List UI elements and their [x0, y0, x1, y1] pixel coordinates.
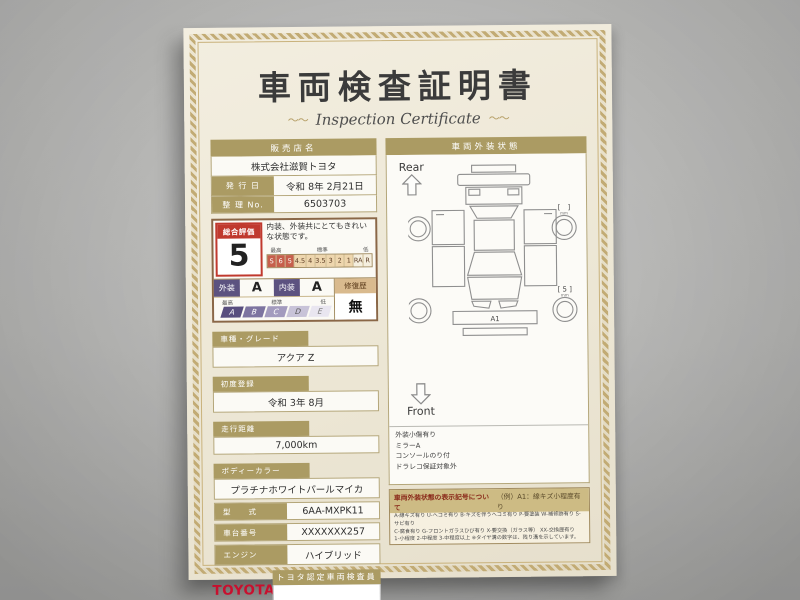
scale-cell: 4.5 — [295, 255, 306, 267]
page-title: 車両検査証明書 — [210, 58, 586, 110]
scale-cell: 5 — [286, 255, 295, 267]
repair-history-label: 修復歴 — [335, 278, 376, 293]
exterior-diagram-panel: Rear — [386, 153, 590, 485]
overall-score-value: 5 — [217, 238, 260, 274]
scale-label-mid: 標準 — [317, 246, 328, 254]
chassis-no-label: 車台番号 — [215, 524, 287, 541]
model-grade-label: 車種・グレード — [212, 331, 308, 347]
repair-history-value: 無 — [335, 293, 376, 319]
interior-grade: A — [300, 279, 334, 296]
grade-cell: E — [308, 306, 331, 317]
scale-cell: 1 — [345, 254, 354, 266]
flourish-left: 〜〜 — [288, 112, 308, 128]
scale-cell: 2 — [336, 255, 345, 267]
scale-label-low: 低 — [363, 245, 369, 253]
inspector-stamp-box — [273, 584, 381, 600]
exterior-label: 外装 — [214, 280, 240, 297]
certificate-paper: 車両検査証明書 〜〜 Inspection Certificate 〜〜 販売店… — [183, 24, 616, 580]
scale-cell: R — [363, 254, 371, 266]
scale-cell: RA — [354, 254, 364, 266]
first-registration-value: 令和 3年 8月 — [213, 390, 379, 413]
scale-cell: 3.5 — [315, 255, 326, 267]
dealer-name: 株式会社滋賀トヨタ — [211, 155, 377, 177]
overall-score-label: 総合評価 — [217, 224, 260, 238]
tire-unit-front: mm — [560, 292, 568, 297]
page-subtitle: Inspection Certificate — [316, 109, 481, 129]
bumper-mark-a1: A1 — [490, 315, 499, 323]
scale-cell: 6 — [277, 255, 286, 267]
grade-label-low: 低 — [320, 298, 326, 306]
control-no-label: 整 理 No. — [212, 196, 274, 213]
exterior-grade: A — [240, 279, 274, 296]
scale-cell: S — [268, 255, 277, 267]
scale-cell: 4 — [306, 255, 315, 267]
evaluation-block: 総合評価 5 内装、外装共にとてもきれいな状態です。 最高 標準 低 S — [211, 217, 378, 323]
grade-cell: B — [242, 306, 265, 317]
model-code-value: 6AA-MXPK11 — [287, 502, 379, 519]
exterior-panel-header: 車両外装状態 — [385, 136, 586, 155]
interior-label: 内装 — [274, 279, 300, 296]
mileage-label: 走行距離 — [213, 421, 309, 437]
score-scale: S 6 5 4.5 4 3.5 3 2 1 RA R — [267, 253, 373, 268]
issue-date-label: 発 行 日 — [212, 176, 274, 196]
model-grade-value: アクア Z — [212, 345, 378, 368]
inspector-section: TOYOTA トヨタ認定車両検査員 — [215, 569, 381, 600]
scale-cell: 3 — [327, 255, 336, 267]
evaluation-comment: 内装、外装共にとてもきれいな状態です。 — [266, 221, 372, 246]
grade-scale: A B C D E — [218, 306, 330, 318]
first-registration-label: 初度登録 — [213, 376, 309, 392]
tire-unit-rear: mm — [560, 210, 568, 215]
legend-line: 1-小程度 2-中程度 3-中程度以上 ※タイヤ溝の数字は、残り溝を示しています… — [390, 535, 589, 545]
front-direction: Front — [407, 383, 435, 418]
grade-label-high: 最高 — [222, 299, 233, 307]
dealer-header: 販売店名 — [210, 138, 376, 157]
engine-label: エンジン — [215, 545, 287, 565]
symbol-legend: 車両外装状態の表示記号について （例）A1：線キズ小程度有り A-線キズ有り U… — [389, 487, 591, 545]
inspector-label: トヨタ認定車両検査員 — [273, 569, 381, 585]
toyota-logo: TOYOTA — [215, 570, 273, 600]
grade-label-mid: 標準 — [271, 298, 282, 306]
front-label: Front — [407, 405, 435, 418]
model-code-label: 型 式 — [215, 503, 287, 520]
note-line: ドラレコ保証対象外 — [396, 460, 583, 472]
chassis-no-value: XXXXXXX257 — [287, 523, 379, 540]
grade-cell: A — [220, 306, 243, 317]
grade-cell: D — [286, 306, 309, 317]
front-arrow-icon — [411, 383, 431, 405]
flourish-right: 〜〜 — [489, 110, 509, 126]
grade-cell: C — [264, 306, 287, 317]
mileage-value: 7,000km — [213, 435, 379, 455]
legend-header: 車両外装状態の表示記号について — [394, 491, 493, 512]
issue-date-value: 令和 8年 2月21日 — [274, 175, 376, 195]
condition-notes: 外装小傷有り ミラーA コンソールのり付 ドラレコ保証対象外 — [389, 424, 589, 484]
legend-example: （例）A1：線キズ小程度有り — [497, 490, 585, 511]
control-no-value: 6503703 — [274, 195, 376, 212]
legend-line: A-線キズ有り U-ヘコミ有り B-キズを伴うヘコミ有り P-要塗装 W-補修跡… — [390, 511, 589, 529]
body-color-value: プラチナホワイトパールマイカ — [214, 477, 380, 500]
scale-label-high: 最高 — [270, 246, 281, 254]
body-color-label: ボディーカラー — [214, 463, 310, 479]
engine-value: ハイブリッド — [287, 544, 379, 564]
car-top-view-diagram: A1 [ ] mm [ 5 ] mm — [407, 161, 581, 375]
overall-score-box: 総合評価 5 — [215, 222, 263, 276]
